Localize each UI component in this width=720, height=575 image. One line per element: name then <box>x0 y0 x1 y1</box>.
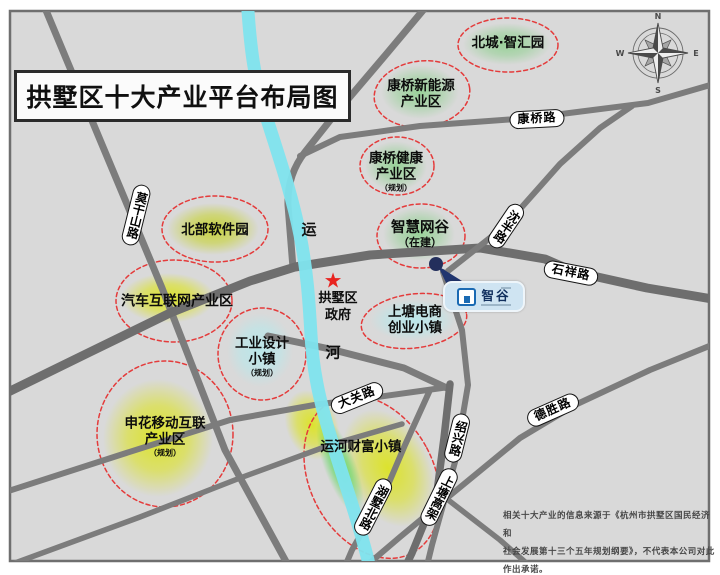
zone-label-shenhua-mobile: 申花移动互联 产业区 （规划） <box>125 416 206 457</box>
map-title-box: 拱墅区十大产业平台布局图 <box>14 70 351 122</box>
zhigu-label: 智谷 <box>481 290 510 303</box>
government-star-icon: ★ <box>324 271 343 292</box>
zhigu-text-block: 智谷 <box>481 286 511 307</box>
zone-label-zhihui-wanggu: 智慧网谷 （在建） <box>391 220 449 250</box>
compass-w-label: W <box>616 49 625 58</box>
zone-label-kangqiao-health: 康桥健康 产业区 （规划） <box>369 151 423 192</box>
zone-label-shangtang-ecommerce: 上塘电商 创业小镇 <box>388 305 442 337</box>
map-title: 拱墅区十大产业平台布局图 <box>26 78 338 114</box>
zone-label-auto-internet: 汽车互联网产业区 <box>121 294 233 311</box>
zone-label-kangqiao-new-energy: 康桥新能源 产业区 <box>387 79 455 111</box>
compass-n-label: N <box>655 12 662 21</box>
zone-label-canal-wealth-town: 运河财富小镇 <box>321 440 402 456</box>
location-dot-icon <box>429 257 443 271</box>
zone-label-beicheng-zhihuiyuan: 北城·智汇园 <box>472 36 545 52</box>
road-label-kangqiao: 康桥路 <box>509 109 565 130</box>
compass-e-label: E <box>693 49 698 58</box>
disclaimer-text: 相关十大产业的信息来源于《杭州市拱墅区国民经济和 社会发展第十三个五年规划纲要》… <box>503 507 715 575</box>
river-label-he: 河 <box>325 342 340 363</box>
compass-s-label: S <box>655 86 661 95</box>
zone-label-industrial-design-town: 工业设计 小镇 （规划） <box>235 336 289 377</box>
map-canvas: N E S W 拱墅区十大产业平台布局图 北城·智汇园 康桥新能源 产业区 康桥… <box>0 0 720 575</box>
zhigu-building-icon <box>457 288 476 306</box>
zone-label-north-software-park: 北部软件园 <box>181 223 249 239</box>
river-label-yun: 运 <box>301 219 316 240</box>
zhigu-logo: 智谷 <box>443 281 525 312</box>
zhigu-tagline-bottom-bar <box>481 304 511 306</box>
government-label: 拱墅区 政府 <box>318 291 357 325</box>
